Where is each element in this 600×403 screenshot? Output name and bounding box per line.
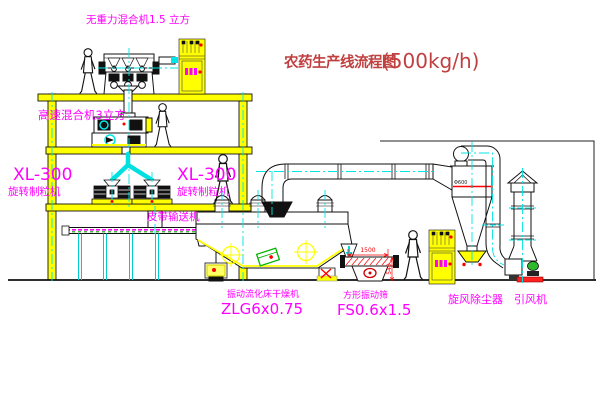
bucket-elevator-right <box>429 230 455 284</box>
exhaust-duct <box>262 164 452 202</box>
induced-draft-fan <box>505 259 543 282</box>
label-gravity-free-mixer: 无重力混合机1.5 立方 <box>86 13 190 26</box>
feed-pipe-cyan-joint <box>171 57 178 63</box>
diagram-title-capacity: (500kg/h) <box>382 49 479 73</box>
dim-sieve-height: 540 <box>386 263 393 275</box>
label-cyclone: 旋风除尘器 <box>448 292 503 306</box>
dryer-support <box>317 268 337 281</box>
label-granulator-right-name: 旋转制粒机 <box>177 185 230 198</box>
label-high-speed-mixer: 高速混合机3立方 <box>38 108 126 122</box>
dim-sieve-length: 1500 <box>360 247 375 254</box>
y-chute <box>112 154 152 180</box>
label-fan: 引风机 <box>514 292 547 306</box>
diagram-title: 农药生产线流程图 <box>283 53 396 71</box>
person-ground <box>404 231 423 280</box>
bucket-elevator-top <box>179 39 205 94</box>
fluid-bed-dryer <box>196 196 352 282</box>
label-fluid-bed-dryer-model: ZLG6x0.75 <box>221 300 303 318</box>
belt-conveyor <box>62 225 206 280</box>
label-belt-conveyor: 皮带输送机 <box>147 210 200 223</box>
label-granulator-left-name: 旋转制粒机 <box>8 185 61 198</box>
diagram-canvas: 无重力混合机1.5 立方 农药生产线流程图 (500kg/h) 高速混合机3立方… <box>0 0 600 403</box>
label-square-sieve-model: FS0.6x1.5 <box>337 301 411 319</box>
fan-motor <box>528 262 539 271</box>
label-fluid-bed-dryer: 振动流化床干燥机 <box>227 288 299 300</box>
fan-base <box>517 277 543 282</box>
person-top-floor <box>80 49 97 94</box>
pesticide-line-flow-diagram: 无重力混合机1.5 立方 农药生产线流程图 (500kg/h) 高速混合机3立方… <box>0 0 600 403</box>
person-floor-2 <box>155 104 171 147</box>
label-granulator-right-model: XL-300 <box>177 165 236 185</box>
label-granulator-left-model: XL-300 <box>13 165 72 185</box>
cyclone-inlet-reducer <box>433 164 452 190</box>
label-square-sieve: 方形振动筛 <box>343 289 388 301</box>
dim-cyclone-diameter: Φ600 <box>454 180 467 186</box>
